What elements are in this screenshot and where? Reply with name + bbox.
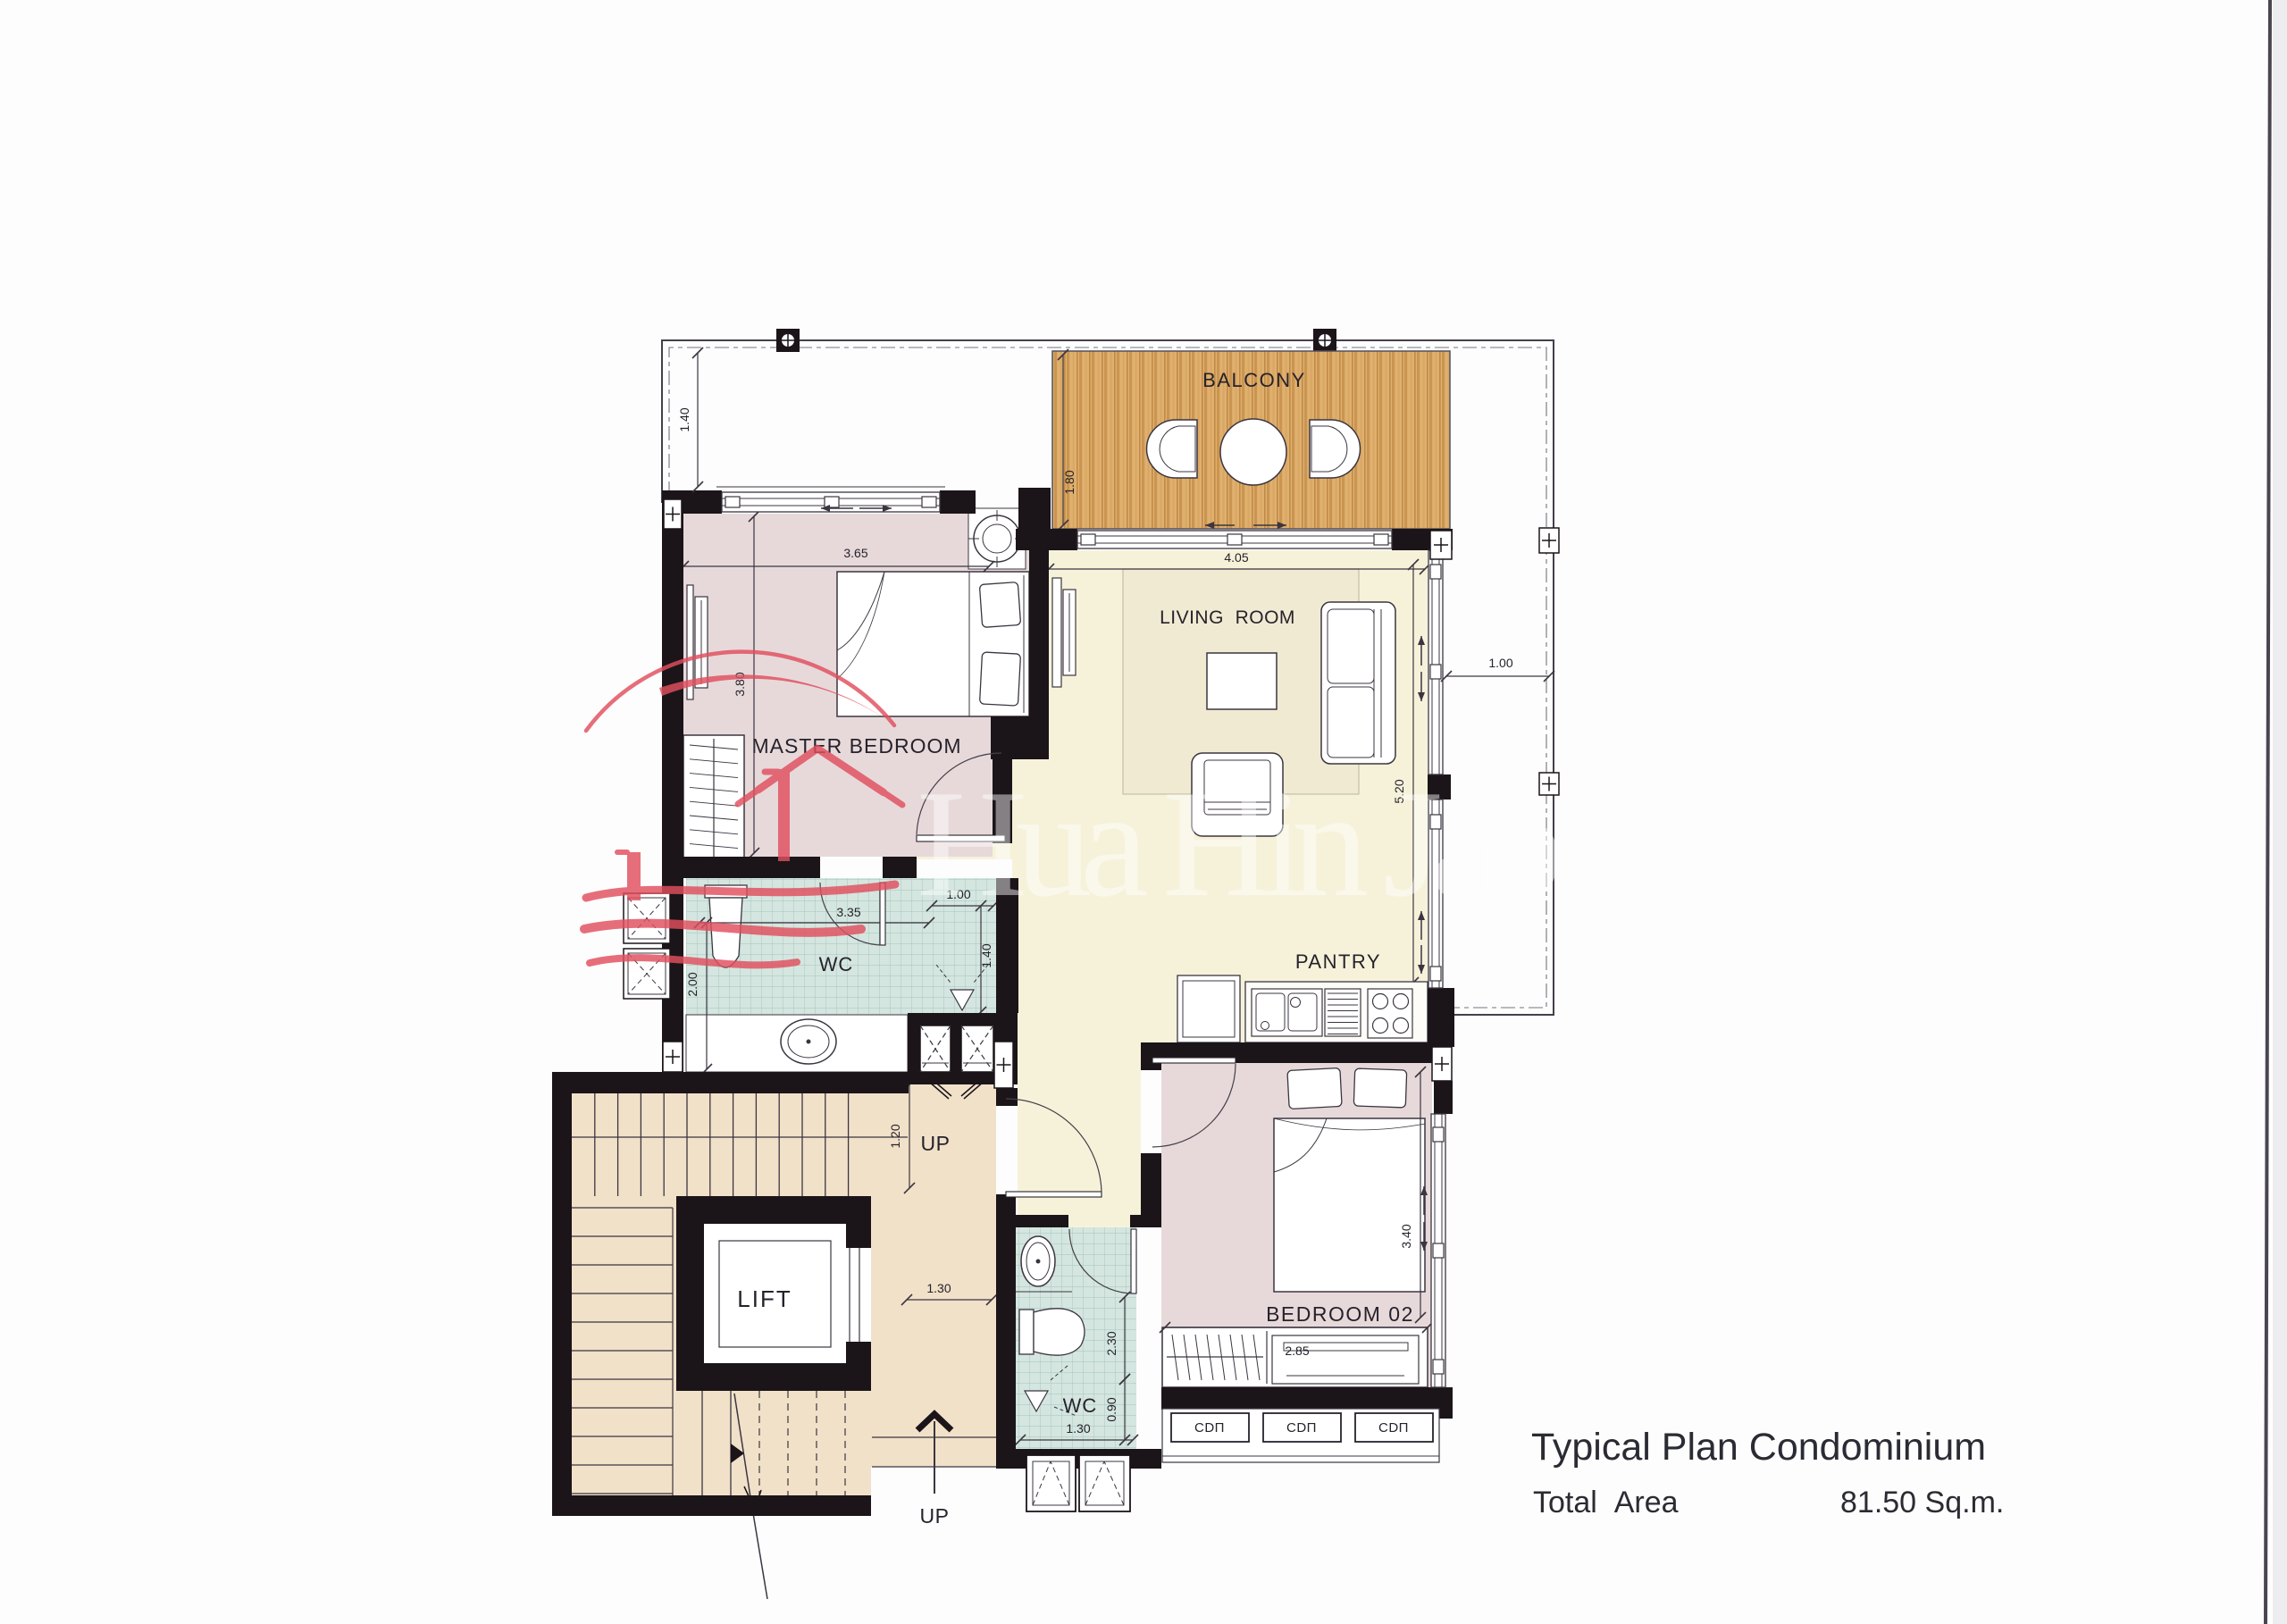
svg-text:4.05: 4.05 bbox=[1224, 550, 1248, 565]
svg-text:BEDROOM 02: BEDROOM 02 bbox=[1266, 1302, 1414, 1326]
svg-text:CDΠ: CDΠ bbox=[1378, 1420, 1409, 1436]
svg-text:2.85: 2.85 bbox=[1285, 1344, 1309, 1358]
svg-text:CDΠ: CDΠ bbox=[1286, 1420, 1317, 1436]
svg-text:WC: WC bbox=[1063, 1394, 1098, 1417]
svg-text:81.50 Sq.m.: 81.50 Sq.m. bbox=[1840, 1486, 2004, 1519]
svg-text:1.30: 1.30 bbox=[926, 1281, 951, 1295]
svg-text:2.30: 2.30 bbox=[1104, 1331, 1118, 1355]
svg-text:LIFT: LIFT bbox=[737, 1285, 792, 1312]
svg-text:3.40: 3.40 bbox=[1399, 1224, 1413, 1248]
svg-text:3.65: 3.65 bbox=[843, 546, 867, 560]
svg-text:UP: UP bbox=[920, 1504, 950, 1528]
svg-text:Typical Plan Condominium: Typical Plan Condominium bbox=[1531, 1426, 1986, 1469]
svg-text:1.80: 1.80 bbox=[1062, 470, 1076, 494]
svg-text:PANTRY: PANTRY bbox=[1295, 950, 1381, 973]
svg-text:1.40: 1.40 bbox=[677, 407, 691, 431]
svg-text:0.90: 0.90 bbox=[1104, 1397, 1118, 1421]
svg-text:CDΠ: CDΠ bbox=[1194, 1420, 1225, 1436]
svg-text:BALCONY: BALCONY bbox=[1202, 369, 1306, 391]
svg-text:Hua Hin Jap: Hua Hin Jap bbox=[917, 759, 1563, 929]
svg-text:LIVING ROOM: LIVING ROOM bbox=[1160, 607, 1295, 628]
svg-text:1.30: 1.30 bbox=[1066, 1421, 1090, 1436]
svg-text:3.35: 3.35 bbox=[836, 905, 860, 919]
svg-text:WC: WC bbox=[819, 953, 854, 975]
svg-text:1.00: 1.00 bbox=[1488, 656, 1512, 670]
svg-text:2.00: 2.00 bbox=[685, 972, 700, 996]
svg-text:1.40: 1.40 bbox=[979, 943, 993, 967]
svg-text:1.20: 1.20 bbox=[888, 1124, 902, 1148]
svg-text:MASTER BEDROOM: MASTER BEDROOM bbox=[751, 734, 961, 758]
svg-text:UP: UP bbox=[921, 1132, 951, 1155]
svg-text:Total Area: Total Area bbox=[1533, 1486, 1679, 1519]
